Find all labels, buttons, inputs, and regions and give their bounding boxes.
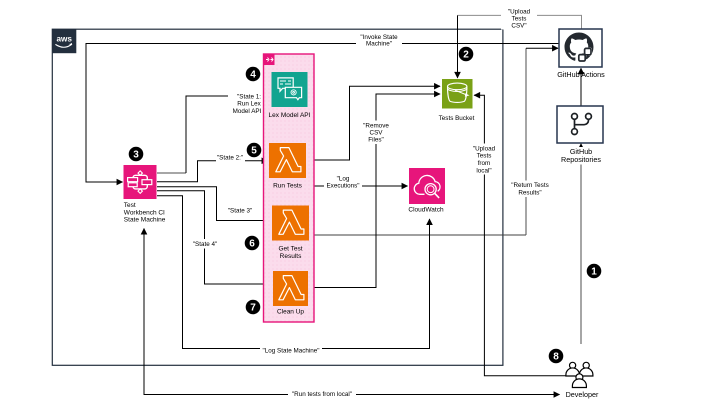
- svg-text:"State 2:": "State 2:": [217, 155, 243, 162]
- svg-text:State Machine: State Machine: [124, 217, 166, 224]
- svg-text:local": local": [476, 168, 491, 175]
- svg-text:Run Lex: Run Lex: [237, 101, 261, 108]
- svg-text:Repositories: Repositories: [561, 155, 601, 164]
- svg-text:"Remove: "Remove: [363, 123, 389, 130]
- svg-text:"State 1:: "State 1:: [237, 93, 261, 100]
- svg-text:Results": Results": [518, 190, 541, 197]
- svg-text:Executions": Executions": [326, 183, 359, 190]
- svg-text:4: 4: [250, 70, 256, 81]
- svg-text:CSV": CSV": [511, 23, 526, 30]
- svg-text:Machine": Machine": [366, 40, 392, 47]
- svg-text:Lex Model API: Lex Model API: [269, 112, 311, 119]
- svg-text:7: 7: [250, 303, 256, 314]
- svg-text:aws: aws: [56, 35, 72, 44]
- svg-text:8: 8: [553, 352, 559, 363]
- svg-text:Tests Bucket: Tests Bucket: [439, 115, 475, 122]
- svg-text:"Upload: "Upload: [508, 9, 531, 16]
- svg-text:"Return Tests: "Return Tests: [511, 182, 548, 189]
- svg-text:Get Test: Get Test: [278, 246, 302, 253]
- svg-text:2: 2: [463, 50, 469, 61]
- svg-text:5: 5: [251, 146, 257, 157]
- svg-text:Model API ": Model API ": [233, 108, 266, 115]
- svg-text:"Upload: "Upload: [473, 145, 496, 152]
- svg-text:"Log State Machine": "Log State Machine": [263, 348, 320, 355]
- svg-text:"Run tests from local": "Run tests from local": [292, 391, 352, 398]
- svg-text:Clean Up: Clean Up: [277, 309, 304, 316]
- svg-text:Results: Results: [280, 253, 302, 260]
- svg-text:Developer: Developer: [566, 390, 599, 399]
- svg-text:Workbench CI: Workbench CI: [124, 209, 165, 216]
- svg-text:Tests: Tests: [477, 153, 492, 160]
- svg-text:"State 4": "State 4": [193, 241, 217, 248]
- svg-text:"Log: "Log: [337, 175, 350, 182]
- svg-text:Run Tests: Run Tests: [273, 183, 303, 190]
- svg-text:from: from: [478, 160, 491, 167]
- svg-text:6: 6: [249, 239, 255, 250]
- svg-text:Files": Files": [368, 137, 384, 144]
- svg-text:Test: Test: [124, 202, 136, 209]
- svg-text:GitHub Actions: GitHub Actions: [557, 70, 605, 79]
- svg-text:Tests: Tests: [512, 16, 527, 23]
- svg-text:CloudWatch: CloudWatch: [408, 206, 444, 213]
- svg-text:1: 1: [591, 267, 597, 278]
- svg-text:3: 3: [133, 150, 139, 161]
- svg-text:CSV: CSV: [370, 130, 384, 137]
- svg-text:"State 3": "State 3": [228, 208, 252, 215]
